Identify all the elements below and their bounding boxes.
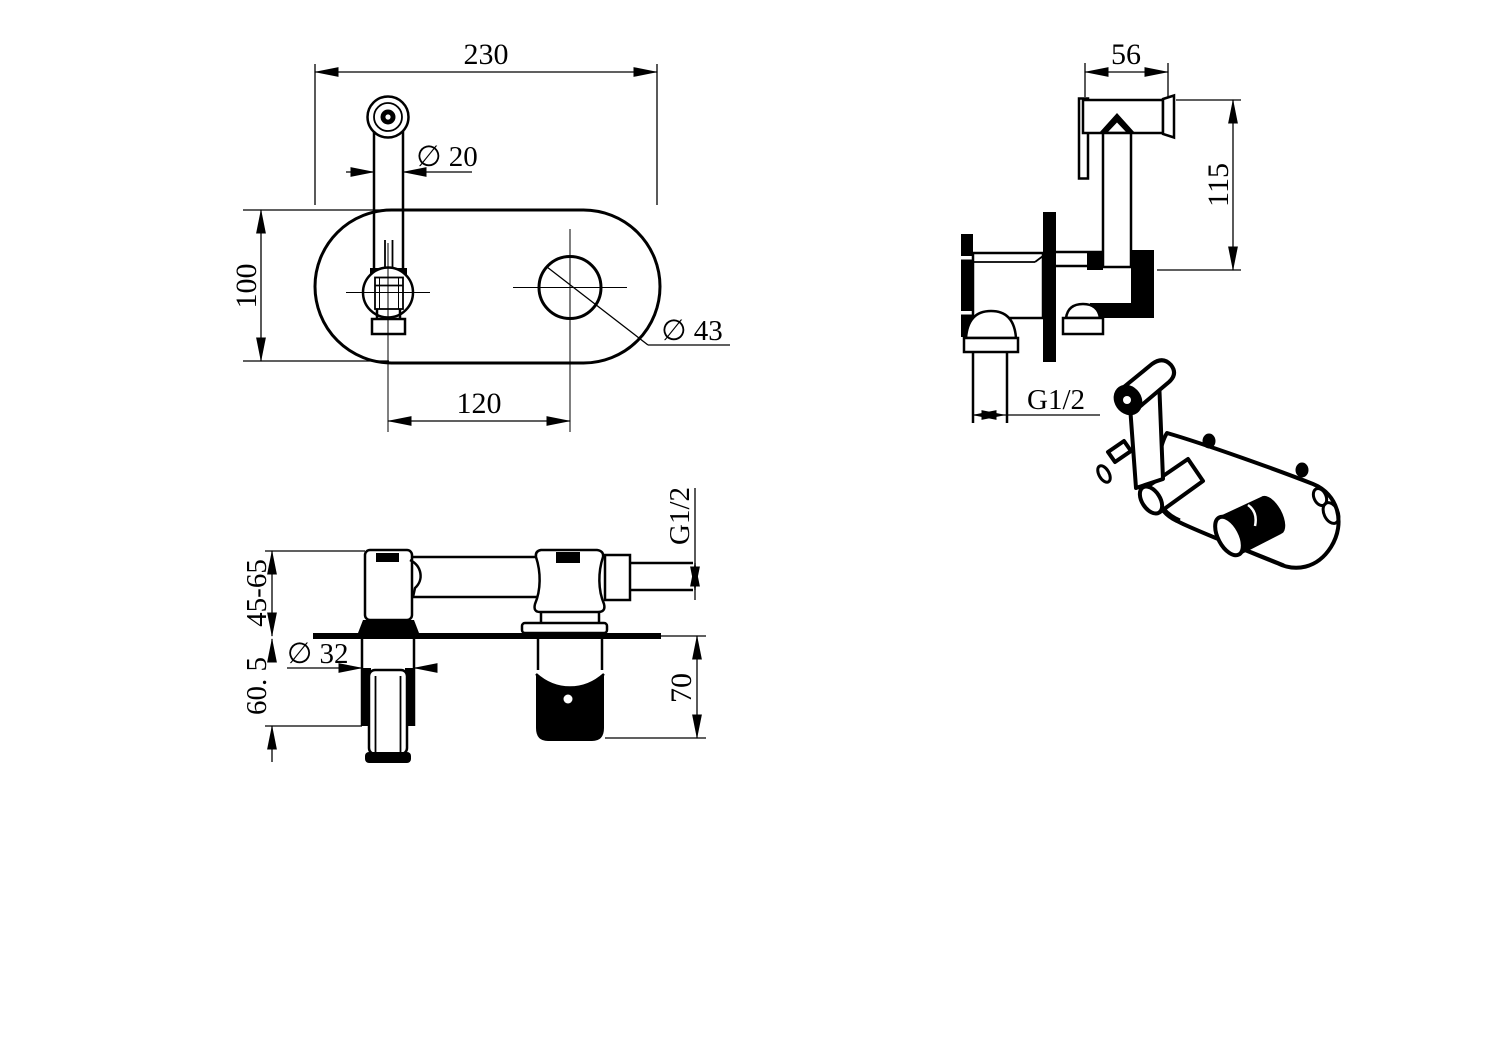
hose-dome [1066, 304, 1100, 318]
holder-collar [358, 620, 419, 633]
valve-end-cap-notch [961, 311, 973, 315]
dim-body-depth-label: 70 [665, 673, 698, 703]
wall-plate-section [313, 633, 661, 639]
iso-fitting [1108, 441, 1131, 462]
handle-sleeve-cap [365, 752, 411, 763]
dim-width-label: 230 [464, 38, 509, 71]
iso-peg [1203, 434, 1216, 449]
sprayer-head-nozzle-center [385, 114, 390, 119]
side-view: 56 G1/2 115 [961, 38, 1241, 423]
dim-handle-hole-label: ∅ 43 [661, 315, 723, 347]
leader-line [547, 267, 648, 345]
holder-arm-block [1087, 252, 1103, 270]
sprayer-head-cap [1163, 96, 1174, 138]
dim-outlet-thread-label: G1/2 [664, 487, 696, 545]
dim-escutcheon-depth-label: 60. 5 [241, 657, 273, 715]
technical-drawing-canvas: 230 ∅ 20 100 [0, 0, 1497, 1058]
technical-drawing-page: 230 ∅ 20 100 [0, 0, 1497, 1058]
outlet-nipple [605, 555, 630, 600]
front-view: 230 ∅ 20 100 [230, 38, 730, 432]
hose-nut [1063, 318, 1103, 334]
dim-spacing-label: 120 [457, 387, 502, 420]
wall-escutcheon-section [1043, 212, 1056, 362]
plan-view: 45-65 60. 5 ∅ 32 70 G1/2 [241, 487, 706, 763]
valve-flange [522, 623, 607, 633]
iso-peg [1296, 463, 1309, 478]
cartridge-screw-dot [564, 695, 573, 704]
dim-inlet-thread-label: G1/2 [1027, 384, 1085, 416]
sprayer-handle-side [1103, 133, 1131, 267]
inlet-collar [964, 338, 1018, 352]
holder-notch [376, 553, 399, 562]
dim-spout-diameter-label: ∅ 20 [416, 141, 478, 173]
dim-head-width-label: 56 [1111, 38, 1141, 71]
isometric-view [1095, 360, 1342, 568]
valve-end-cap-notch [961, 256, 973, 260]
valve-notch [556, 552, 580, 563]
dim-depth-range-label: 45-65 [241, 559, 273, 627]
dim-overall-height-label: 115 [1202, 163, 1235, 207]
dim-height-label: 100 [230, 264, 263, 309]
iso-fitting [1095, 464, 1113, 485]
dim-escutcheon-diameter-label: ∅ 32 [287, 638, 349, 670]
iso-sprayer-nozzle [1123, 396, 1131, 404]
